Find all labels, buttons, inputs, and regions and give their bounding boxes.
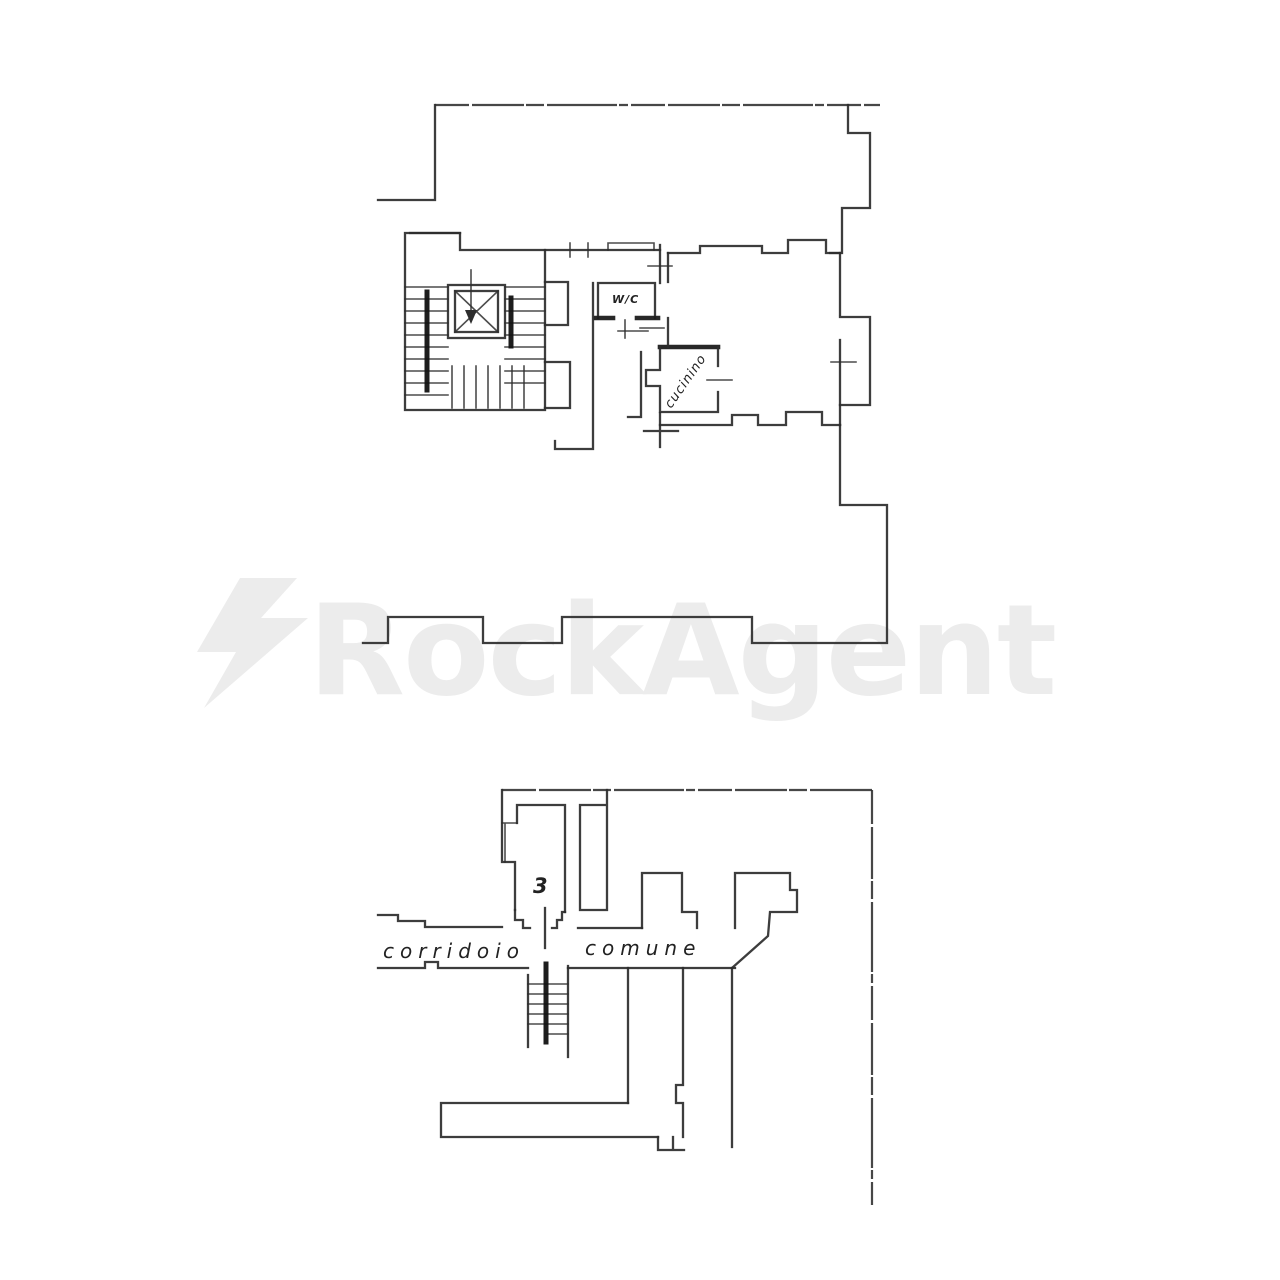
- room3-wall-notch: [502, 823, 517, 862]
- kitchenette-room: cucinino: [628, 347, 732, 447]
- lower-floor-plan: 3 corridoio comune: [378, 790, 872, 1205]
- room-number-label: 3: [533, 874, 548, 898]
- staircase: [405, 233, 570, 410]
- elevator-x-mark: [455, 291, 498, 332]
- wc-room: W/C: [596, 283, 658, 338]
- watermark: RockAgent: [197, 577, 1055, 724]
- room3-outer-left-wall: [502, 790, 515, 910]
- floor-plan-document: RockAgent: [0, 0, 1280, 1280]
- arrow-head-icon: [465, 310, 477, 324]
- kitchenette-label: cucinino: [662, 352, 710, 412]
- lightning-bolt-icon: [197, 578, 308, 708]
- hall-kitchenette-wall: [628, 352, 641, 417]
- shaft-room-2: [732, 873, 797, 968]
- exterior-wall-right-upper: [830, 105, 870, 253]
- lower-stub: [658, 1137, 684, 1150]
- floor-plan-canvas: RockAgent: [0, 0, 1280, 1280]
- corridor-wall-top-left: [378, 915, 502, 927]
- balcony: [840, 317, 870, 405]
- landing-wall-stub-lower: [545, 362, 570, 408]
- staircase-lower: [528, 964, 568, 1057]
- wc-label: W/C: [612, 293, 639, 306]
- landing-wall-stub-upper: [545, 282, 568, 325]
- hall-wall: [555, 283, 593, 449]
- watermark-text: RockAgent: [308, 577, 1055, 724]
- wall-band: [580, 790, 607, 910]
- corridor-label-right: comune: [585, 936, 701, 960]
- shaft-room-1: [642, 873, 697, 928]
- room-3: 3: [502, 790, 565, 948]
- main-room: [660, 240, 870, 425]
- lower-band-walls: [441, 1103, 658, 1137]
- interior-wall-top: [410, 233, 660, 250]
- room3-door-jamb-right: [552, 912, 565, 928]
- wall-cross-mark: [644, 413, 678, 447]
- elevator: [448, 285, 505, 338]
- room3-door-jamb-left: [515, 910, 530, 928]
- main-room-wall-bottom: [660, 412, 840, 425]
- upper-floor-plan: W/C cucinino: [363, 105, 887, 643]
- corridor-label-left: corridoio: [383, 939, 525, 963]
- vertical-corridor-left-wall: [628, 968, 683, 1137]
- main-room-wall-top: [668, 240, 840, 253]
- stair-treads-bottom: [452, 366, 524, 408]
- exterior-wall-top-left: [378, 105, 435, 200]
